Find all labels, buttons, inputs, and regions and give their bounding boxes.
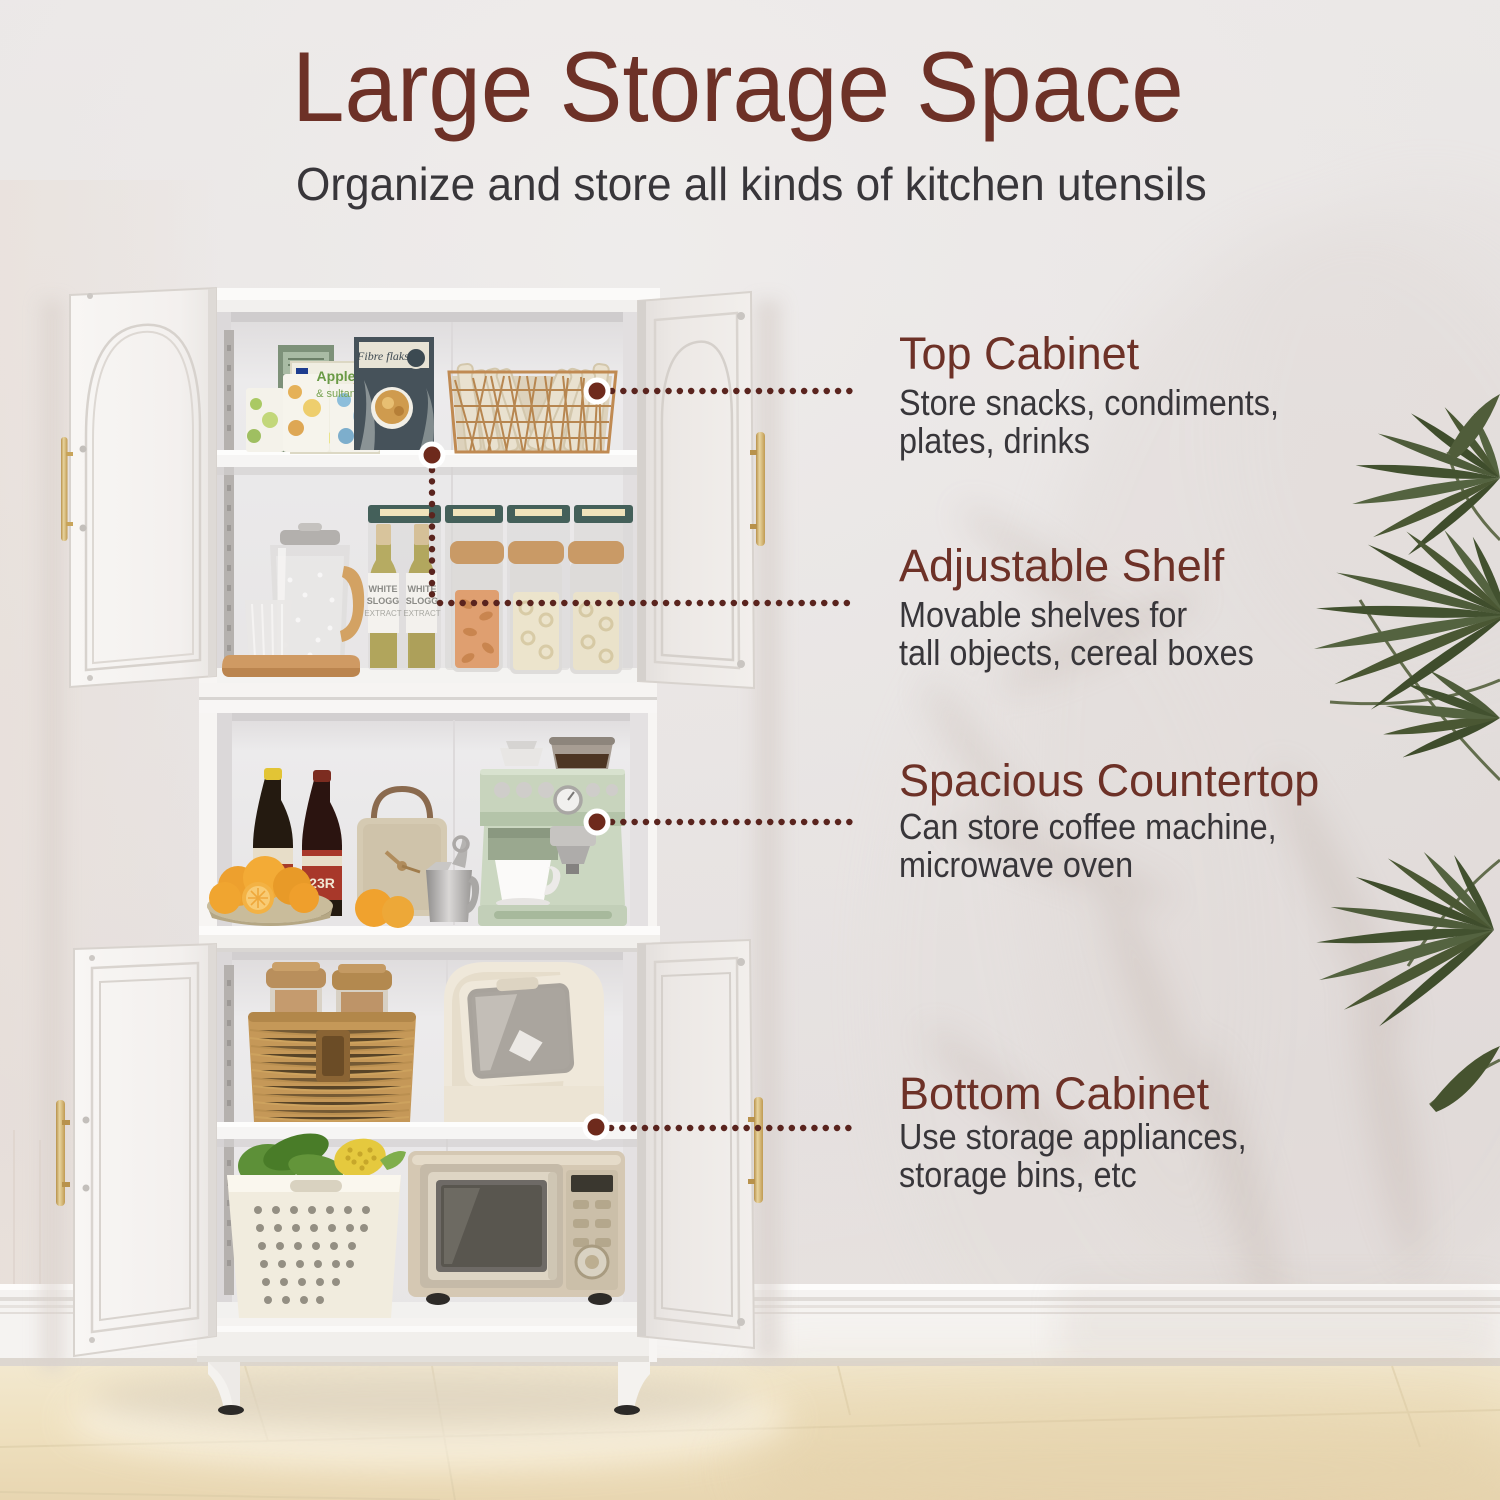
svg-text:SLOGG: SLOGG (406, 596, 439, 606)
svg-text:SLOGG: SLOGG (367, 596, 400, 606)
svg-text:Fibre flaks: Fibre flaks (356, 349, 409, 363)
svg-text:Apple: Apple (317, 368, 356, 384)
svg-text:EXTRACT: EXTRACT (364, 609, 401, 618)
svg-text:WHITE: WHITE (369, 584, 398, 594)
svg-text:EXTRACT: EXTRACT (403, 609, 440, 618)
